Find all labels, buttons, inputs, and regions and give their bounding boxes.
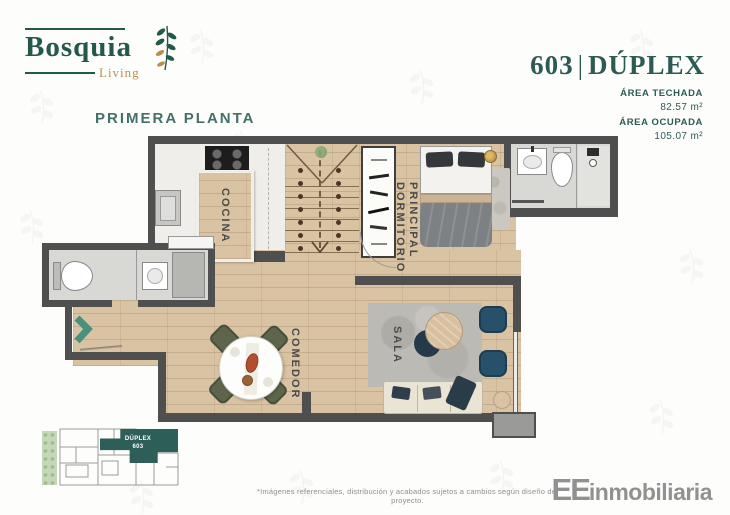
towel-bar <box>512 200 544 203</box>
hanger-mark <box>368 174 388 179</box>
wall-kitchen-left <box>148 136 155 247</box>
wall-kitchen-stub <box>253 251 285 262</box>
hanger-mark <box>368 207 389 214</box>
bath1-toilet-tank <box>53 262 61 290</box>
room-label-sala: SALA <box>391 326 403 364</box>
side-table <box>493 391 511 409</box>
wall-bottom <box>158 413 536 422</box>
window-right <box>513 332 518 414</box>
place-setting <box>263 377 273 387</box>
plant-decor <box>315 146 327 158</box>
keyplan-unit-label: DÚPLEX 603 <box>116 436 160 452</box>
sofa-seam <box>417 385 418 412</box>
laundry-niche <box>168 236 214 249</box>
unit-title: 603|DÚPLEX <box>405 50 705 81</box>
bed <box>420 146 492 247</box>
logo-tagline: Living <box>99 65 140 81</box>
hanger-mark <box>369 191 387 197</box>
dining-table <box>219 336 283 400</box>
logo-rule <box>25 72 95 74</box>
counter-dashed-line <box>268 148 269 254</box>
area-ocupada-label: ÁREA OCUPADA <box>619 117 703 128</box>
floor-plan-title: PRIMERA PLANTA <box>95 110 256 127</box>
area-ocupada-value: 105.07 m² <box>619 131 703 142</box>
place-setting <box>230 347 240 357</box>
sofa-pillow <box>391 386 410 400</box>
stair-direction-arrow <box>310 241 330 254</box>
wall-bath1-bottom-b <box>138 300 215 307</box>
bath2-toilet-tank <box>553 147 571 153</box>
wall-bath1-right <box>208 243 215 307</box>
wall-bath2-bottom <box>504 208 618 217</box>
realtor-brand-logo: EE inmobiliaria <box>552 472 712 508</box>
unit-type: DÚPLEX <box>588 50 705 80</box>
room-label-comedor: COMEDOR <box>289 328 301 399</box>
column-block <box>492 412 536 438</box>
keyplan-unit-type: DÚPLEX <box>116 436 160 444</box>
brand-logo: Bosquia Living <box>25 28 155 81</box>
bed-fold <box>420 194 492 203</box>
unit-number: 603 <box>530 50 574 80</box>
leaf-branch-icon <box>153 22 179 74</box>
brand-logo-ee: EE <box>552 472 589 508</box>
wall-dining-left <box>158 352 166 420</box>
bath1-divider <box>136 250 137 300</box>
hanger-mark <box>370 225 387 230</box>
shower-head <box>587 148 599 156</box>
bath1-sink <box>142 262 168 290</box>
sofa <box>383 381 483 414</box>
armchair <box>479 306 507 333</box>
nightstand-lamp <box>484 150 497 163</box>
armchair <box>479 350 507 377</box>
room-label-dormitorio-line2: PRINCIPAL <box>407 182 419 273</box>
kitchen-sink <box>155 190 181 226</box>
flyer-page: Bosquia Living PRIMERA PLANTA 603|DÚPLEX… <box>0 0 730 515</box>
sink-basin <box>523 155 542 169</box>
room-label-dormitorio-line1: DORMITORIO <box>394 182 406 273</box>
keyplan-unit-number: 603 <box>116 444 160 452</box>
sink-basin <box>147 268 163 284</box>
bed-pillow <box>458 151 486 167</box>
coffee-table <box>425 312 463 350</box>
bed-blanket <box>420 203 492 247</box>
faucet <box>531 146 534 152</box>
entry-arrow-icon <box>74 315 94 345</box>
shower-drain <box>589 159 597 167</box>
wall-bath1-left <box>42 243 49 307</box>
wall-bath1-bottom-a <box>42 300 112 307</box>
shower-divider <box>576 144 577 208</box>
sink-basin <box>160 196 176 221</box>
room-label-cocina: COCINA <box>219 188 231 243</box>
unit-separator: | <box>574 50 588 80</box>
hanger-mark <box>371 159 387 161</box>
area-summary: ÁREA TECHADA 82.57 m² ÁREA OCUPADA 105.0… <box>619 84 703 142</box>
wall-top <box>148 136 618 144</box>
area-techada-label: ÁREA TECHADA <box>619 88 703 99</box>
wall-bedroom-sala <box>355 276 521 285</box>
bath2-sink <box>517 148 547 175</box>
brand-logo-name: inmobiliaria <box>589 479 712 506</box>
keyplan-landscape-strip <box>42 431 57 485</box>
sofa-pillow <box>422 386 441 400</box>
wall-entry-bottom <box>65 352 165 360</box>
wall-right-upper <box>610 136 618 217</box>
logo-rule <box>25 28 125 30</box>
disclaimer-text: *Imágenes referenciales, distribución y … <box>240 487 575 505</box>
exterior-mask <box>42 366 158 428</box>
area-techada-value: 82.57 m² <box>619 102 703 113</box>
bed-pillow <box>426 151 454 167</box>
room-label-dormitorio: DORMITORIO PRINCIPAL <box>394 182 419 273</box>
food-plate <box>242 375 253 386</box>
logo-name: Bosquia <box>25 33 155 62</box>
wall-door-nib <box>302 392 311 422</box>
wall-right-jog <box>513 285 521 332</box>
bath1-cabinet <box>172 252 205 298</box>
cooktop <box>205 146 249 172</box>
